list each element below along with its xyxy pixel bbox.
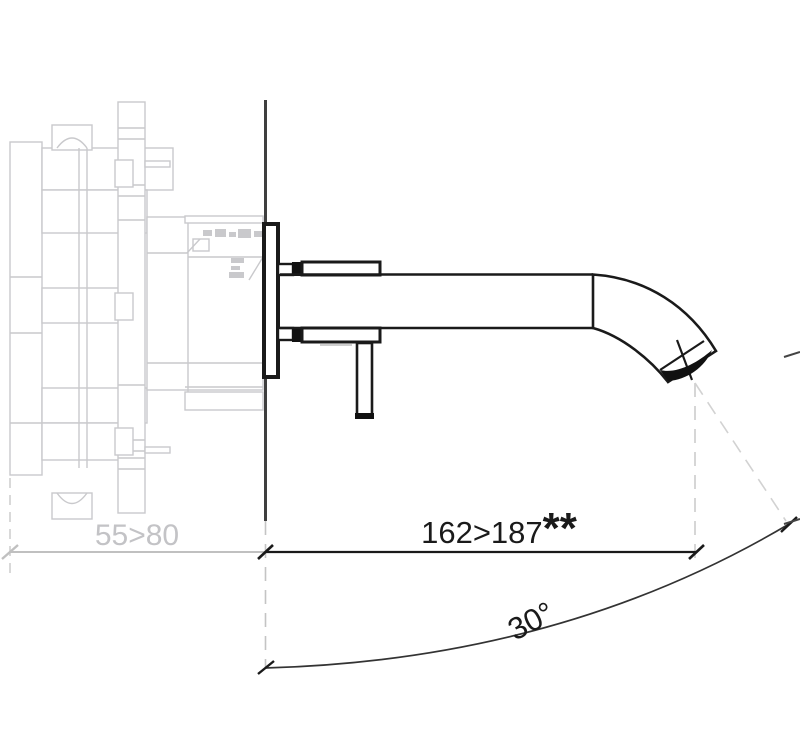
dimension-spout-projection: 162>187** xyxy=(258,504,704,559)
escutcheon-plate xyxy=(264,224,278,377)
right-edge-reference-ticks xyxy=(784,352,800,524)
swivel-angle-label: 30° xyxy=(502,595,560,647)
concealed-valve-body xyxy=(10,102,263,519)
wall-mounted-spout xyxy=(264,224,716,419)
spout-sleeve xyxy=(302,262,380,275)
handle-lever xyxy=(355,343,374,419)
technical-drawing-canvas: 55>80 162>187** 30° xyxy=(0,0,800,743)
spout-tube xyxy=(280,275,593,329)
wall-depth-dimension-label: 55>80 xyxy=(95,519,179,552)
bottom-arch-fitting xyxy=(52,493,92,519)
spout-projection-dimension-label: 162>187** xyxy=(421,504,578,553)
faucet-technical-drawing: 55>80 162>187** 30° xyxy=(0,0,800,743)
cartridge-housing xyxy=(147,217,263,390)
footnote-asterisks: ** xyxy=(543,504,578,553)
tip-swivel-projection xyxy=(695,383,786,521)
